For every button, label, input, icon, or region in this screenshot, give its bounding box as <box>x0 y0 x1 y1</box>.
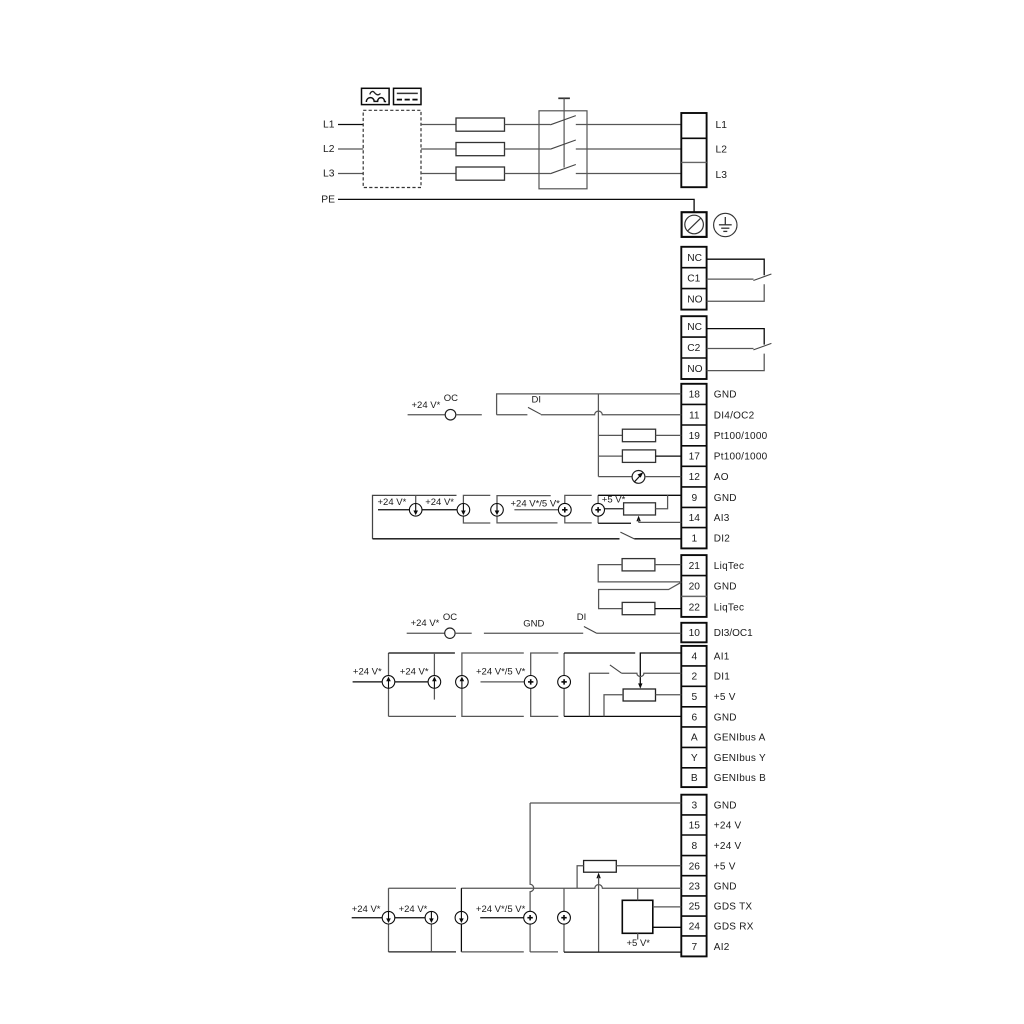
svg-text:PE: PE <box>321 194 335 205</box>
svg-text:+24 V*: +24 V* <box>412 400 441 411</box>
svg-text:+5 V*: +5 V* <box>602 495 626 506</box>
svg-text:+24 V*: +24 V* <box>400 667 429 678</box>
svg-text:GDS TX: GDS TX <box>714 902 753 913</box>
svg-text:5: 5 <box>691 692 697 703</box>
svg-text:OC: OC <box>443 612 457 623</box>
svg-text:GND: GND <box>714 582 737 593</box>
svg-text:AI2: AI2 <box>714 942 730 953</box>
svg-text:+24 V*: +24 V* <box>411 618 440 629</box>
svg-text:21: 21 <box>689 561 701 572</box>
svg-text:Y: Y <box>691 753 698 764</box>
svg-text:10: 10 <box>689 628 701 639</box>
svg-text:DI1: DI1 <box>714 672 731 683</box>
svg-text:DI: DI <box>532 395 542 406</box>
svg-text:GND: GND <box>714 712 737 723</box>
svg-text:NC: NC <box>687 253 702 264</box>
svg-text:GENIbus A: GENIbus A <box>714 733 766 744</box>
svg-text:DI2: DI2 <box>714 534 731 545</box>
svg-text:7: 7 <box>691 942 697 953</box>
svg-text:DI: DI <box>577 612 587 623</box>
svg-text:+24 V*: +24 V* <box>378 497 407 508</box>
svg-text:L1: L1 <box>716 120 728 131</box>
svg-text:+24 V*: +24 V* <box>353 667 382 678</box>
svg-text:L2: L2 <box>716 144 728 155</box>
svg-text:OC: OC <box>444 393 458 404</box>
svg-text:17: 17 <box>689 452 701 463</box>
svg-text:GENIbus Y: GENIbus Y <box>714 753 766 764</box>
svg-text:L2: L2 <box>323 144 335 155</box>
svg-text:LiqTec: LiqTec <box>714 561 744 572</box>
svg-text:L3: L3 <box>716 170 728 181</box>
svg-text:24: 24 <box>689 922 701 933</box>
svg-text:+5 V: +5 V <box>714 692 736 703</box>
svg-text:+24 V*/5 V*: +24 V*/5 V* <box>476 904 526 915</box>
svg-text:14: 14 <box>689 513 701 524</box>
svg-text:AO: AO <box>714 472 729 483</box>
svg-text:GND: GND <box>714 800 737 811</box>
svg-text:AI1: AI1 <box>714 652 730 663</box>
svg-text:GND: GND <box>714 390 737 401</box>
svg-text:9: 9 <box>691 493 697 504</box>
svg-text:3: 3 <box>691 800 697 811</box>
svg-text:C1: C1 <box>687 274 700 285</box>
svg-text:4: 4 <box>691 652 697 663</box>
svg-text:25: 25 <box>689 902 701 913</box>
svg-text:+24 V*: +24 V* <box>352 904 381 915</box>
svg-text:+24 V: +24 V <box>714 841 742 852</box>
svg-text:GDS RX: GDS RX <box>714 922 754 933</box>
svg-text:+24 V*: +24 V* <box>399 904 428 915</box>
svg-text:19: 19 <box>689 431 701 442</box>
svg-text:Pt100/1000: Pt100/1000 <box>714 452 768 463</box>
svg-text:2: 2 <box>691 672 697 683</box>
svg-text:+5 V: +5 V <box>714 861 736 872</box>
svg-text:L3: L3 <box>323 168 335 179</box>
svg-text:LiqTec: LiqTec <box>714 602 744 613</box>
svg-text:8: 8 <box>691 841 697 852</box>
svg-text:DI4/OC2: DI4/OC2 <box>714 410 755 421</box>
svg-text:NO: NO <box>687 295 702 306</box>
svg-text:GND: GND <box>714 881 737 892</box>
svg-text:18: 18 <box>689 390 701 401</box>
svg-text:L1: L1 <box>323 119 335 130</box>
svg-text:11: 11 <box>689 410 700 421</box>
svg-text:20: 20 <box>689 582 701 593</box>
svg-text:6: 6 <box>691 712 697 723</box>
svg-text:NO: NO <box>687 364 702 375</box>
svg-text:A: A <box>691 733 698 744</box>
svg-text:+24 V*/5 V*: +24 V*/5 V* <box>511 499 561 510</box>
svg-text:22: 22 <box>689 602 701 613</box>
svg-text:B: B <box>691 773 698 784</box>
svg-text:1: 1 <box>691 534 697 545</box>
svg-text:+24 V: +24 V <box>714 821 742 832</box>
svg-text:DI3/OC1: DI3/OC1 <box>714 628 753 639</box>
svg-text:GND: GND <box>523 618 544 629</box>
svg-text:C2: C2 <box>687 343 700 354</box>
svg-text:AI3: AI3 <box>714 513 730 524</box>
svg-text:+5 V*: +5 V* <box>627 938 651 949</box>
svg-text:+24 V*: +24 V* <box>425 497 454 508</box>
svg-text:26: 26 <box>689 861 701 872</box>
svg-text:12: 12 <box>689 472 701 483</box>
svg-text:GND: GND <box>714 493 737 504</box>
svg-text:Pt100/1000: Pt100/1000 <box>714 431 768 442</box>
svg-text:NC: NC <box>687 322 702 333</box>
svg-text:15: 15 <box>689 821 701 832</box>
svg-text:GENIbus B: GENIbus B <box>714 773 766 784</box>
svg-text:+24 V*/5 V*: +24 V*/5 V* <box>476 667 526 678</box>
svg-text:23: 23 <box>689 881 701 892</box>
